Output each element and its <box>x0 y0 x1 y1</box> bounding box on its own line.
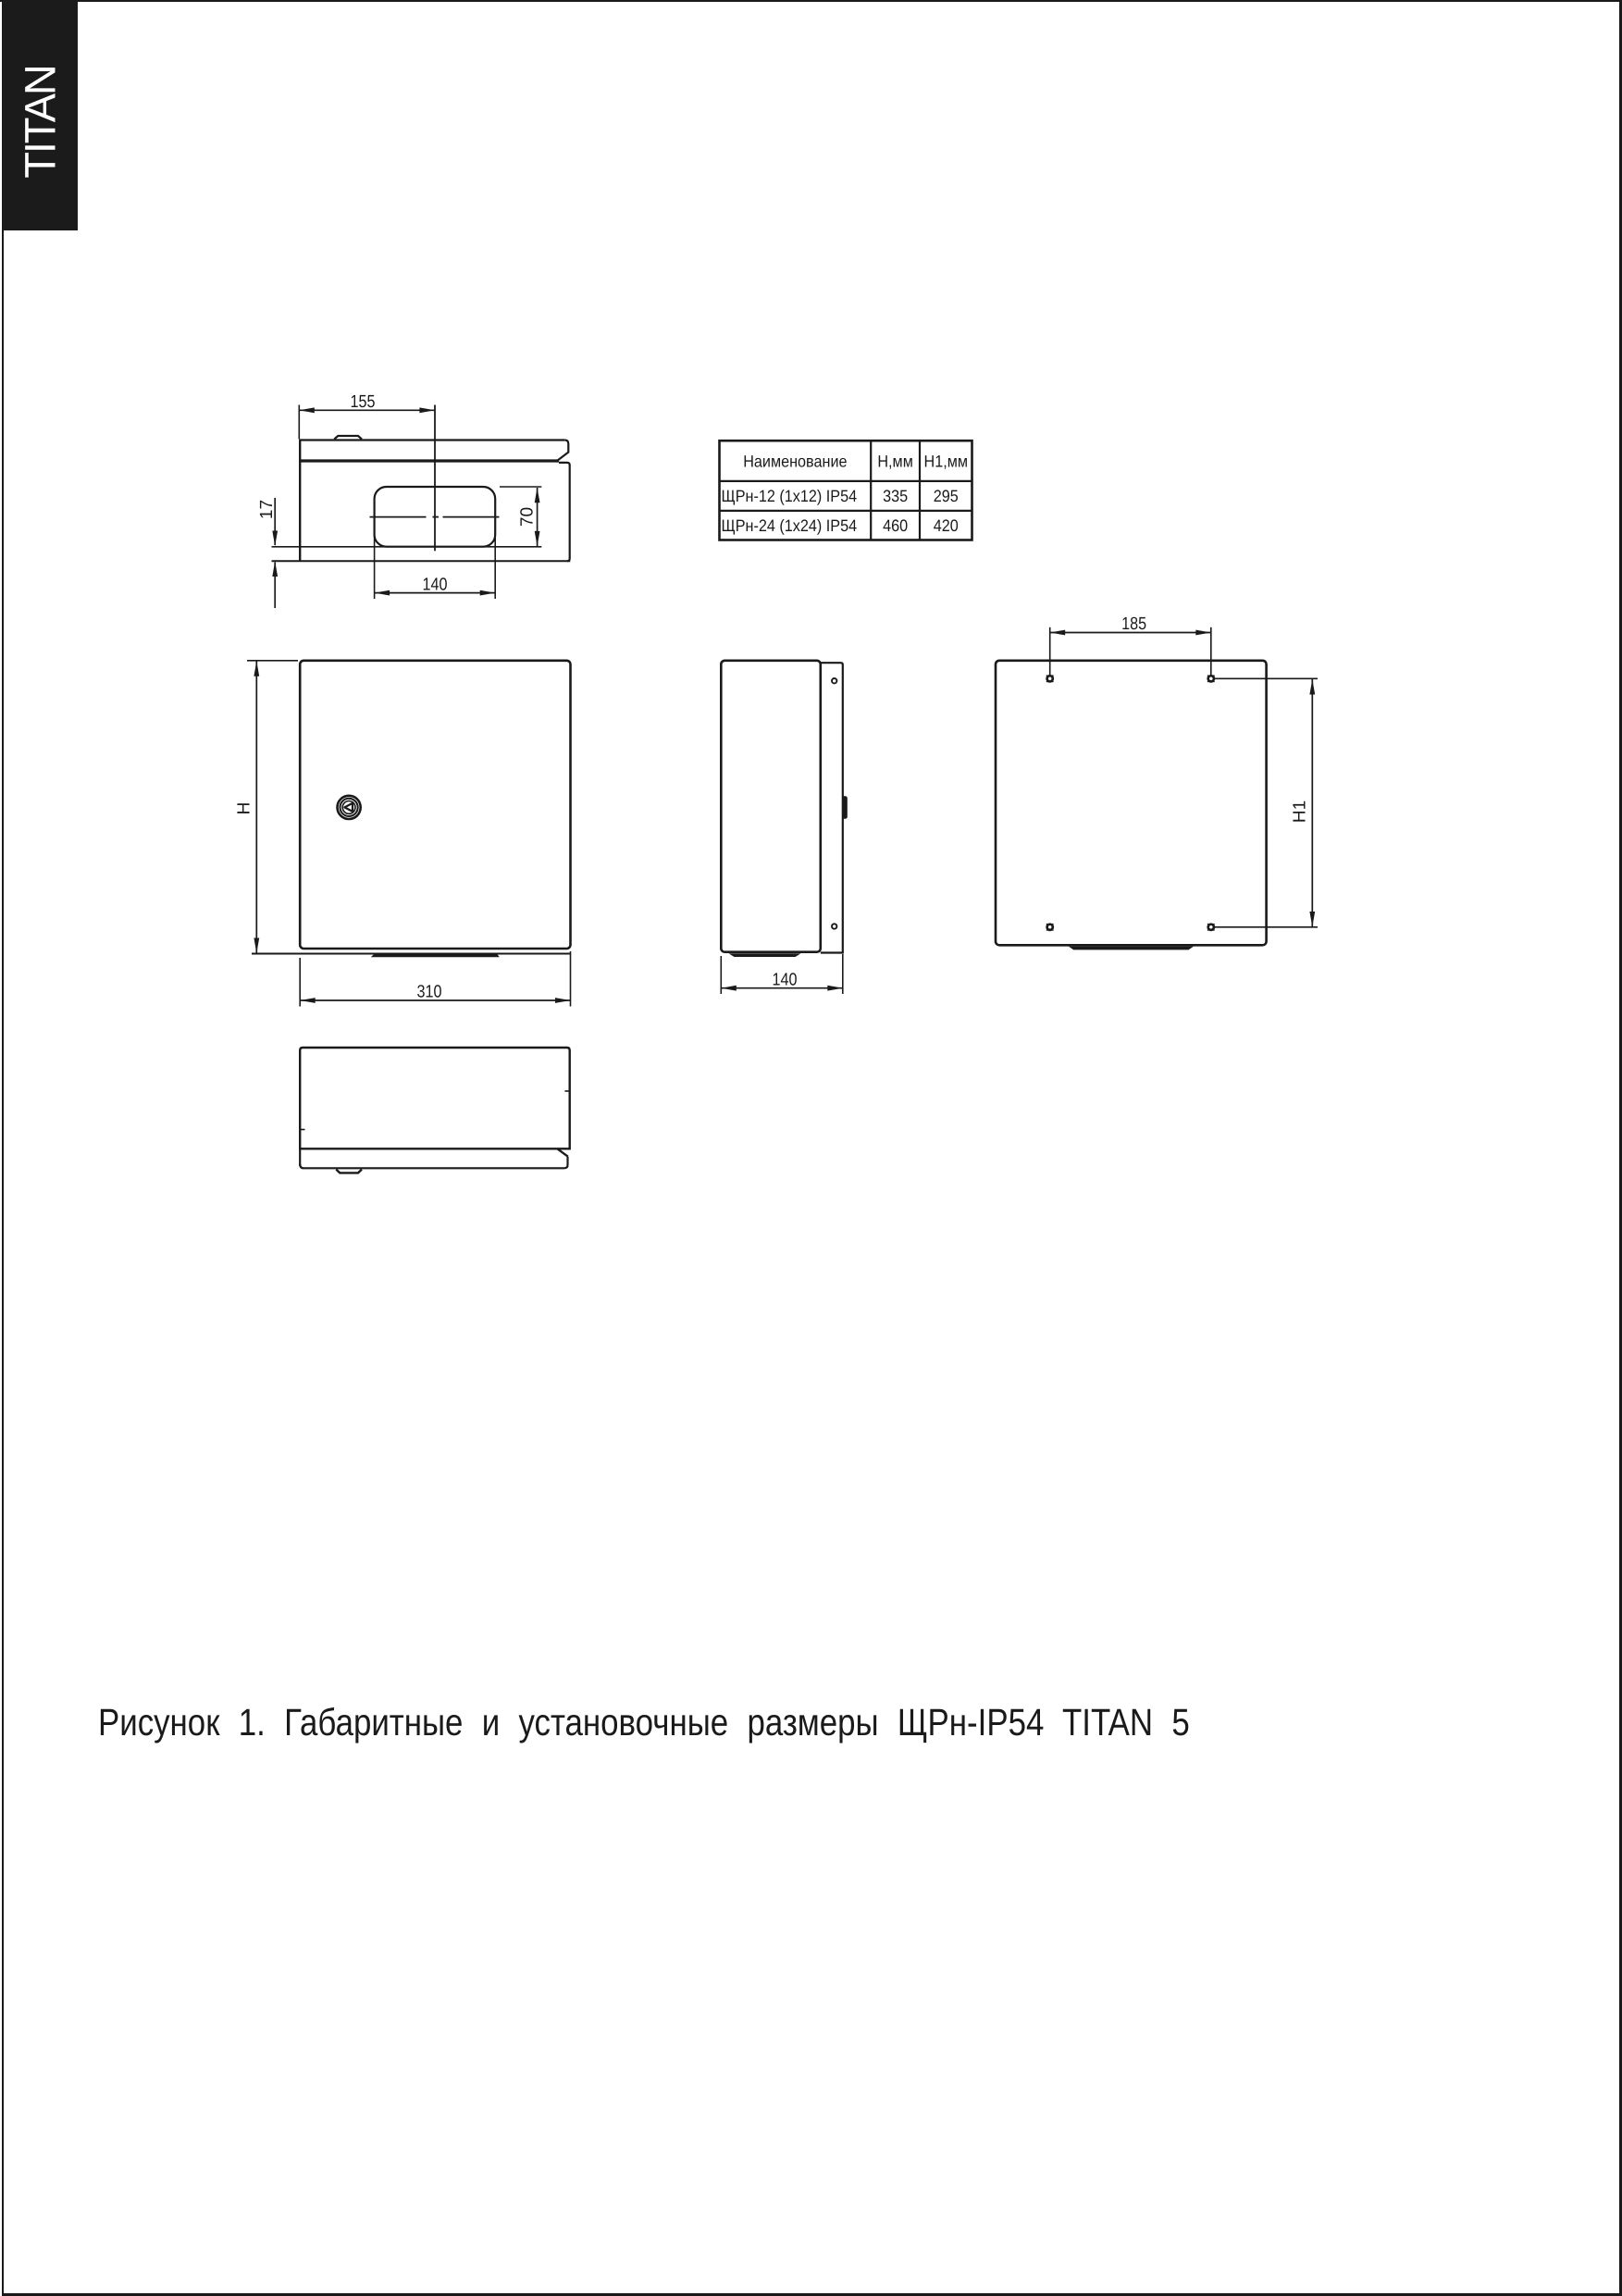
svg-text:Н1: Н1 <box>1291 800 1310 823</box>
svg-text:17: 17 <box>257 500 277 519</box>
svg-text:ЩРн-24 (1х24) IP54: ЩРн-24 (1х24) IP54 <box>722 516 858 535</box>
svg-text:155: 155 <box>351 392 376 412</box>
svg-text:ЩРн-12 (1х12) IP54: ЩРн-12 (1х12) IP54 <box>722 487 858 505</box>
svg-text:140: 140 <box>773 971 798 990</box>
svg-text:295: 295 <box>934 487 959 505</box>
svg-text:70: 70 <box>518 507 538 527</box>
svg-text:185: 185 <box>1121 614 1146 634</box>
svg-text:140: 140 <box>423 576 448 595</box>
svg-text:Наименование: Наименование <box>743 453 847 471</box>
svg-text:420: 420 <box>934 516 959 535</box>
svg-text:Н: Н <box>235 802 254 815</box>
svg-text:460: 460 <box>883 516 908 535</box>
svg-text:Н,мм: Н,мм <box>877 453 912 471</box>
svg-text:310: 310 <box>417 983 442 1002</box>
svg-text:Н1,мм: Н1,мм <box>924 453 968 471</box>
svg-text:335: 335 <box>883 487 908 505</box>
